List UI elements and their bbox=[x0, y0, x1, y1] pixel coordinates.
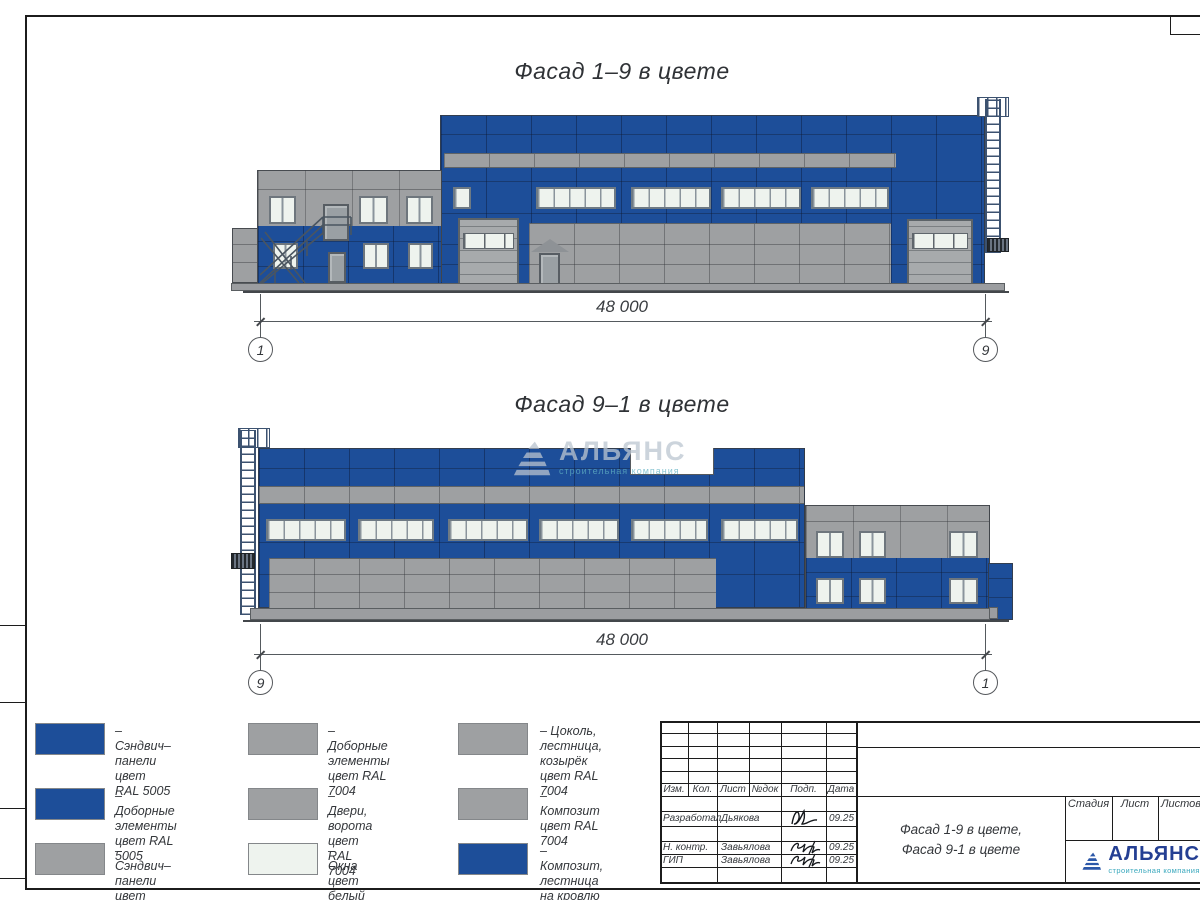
company-logo: АЛЬЯНС строительная компания bbox=[1082, 842, 1200, 882]
tb-name: Завьялова bbox=[719, 854, 779, 867]
facade2-annex bbox=[988, 563, 1013, 620]
wall-unit bbox=[987, 238, 1009, 252]
panel-joint bbox=[989, 597, 1012, 598]
panel-joint bbox=[269, 574, 716, 575]
margin-box-line bbox=[0, 878, 26, 879]
window bbox=[359, 196, 388, 224]
margin-box-line bbox=[0, 808, 26, 809]
logo-pyramid-icon bbox=[1082, 842, 1102, 880]
grid-line bbox=[660, 746, 857, 747]
facade2-gray-band bbox=[259, 486, 804, 504]
gate-window-row bbox=[912, 233, 968, 249]
wall-unit bbox=[231, 553, 255, 569]
window bbox=[363, 243, 389, 269]
roof-ladder bbox=[240, 430, 256, 615]
watermark: АЛЬЯНС строительная компания bbox=[513, 436, 723, 484]
ribbon-window bbox=[631, 519, 708, 541]
panel-joint bbox=[806, 521, 989, 522]
legend-label: – Композитцвет RAL 7004 bbox=[540, 789, 600, 849]
dimension-line bbox=[254, 321, 992, 322]
panel-joint bbox=[806, 572, 989, 573]
tb-stage: Стадия bbox=[1065, 796, 1112, 811]
window bbox=[406, 196, 433, 224]
legend-swatch bbox=[35, 723, 105, 755]
ribbon-window bbox=[453, 187, 471, 209]
panel-joint bbox=[441, 181, 984, 182]
legend-swatch bbox=[458, 843, 528, 875]
legend-label: – Сэндвич–панелицвет RAL 5005 bbox=[115, 724, 171, 799]
watermark-name: АЛЬЯНС bbox=[559, 436, 687, 466]
watermark-pyramid-icon bbox=[513, 436, 553, 480]
ribbon-window bbox=[721, 187, 801, 209]
grid-line bbox=[660, 758, 857, 759]
window bbox=[859, 578, 886, 604]
facade2-office-block bbox=[805, 505, 990, 610]
facade-9-1-title: Фасад 9–1 в цвете bbox=[392, 391, 852, 418]
canopy-icon bbox=[531, 239, 569, 252]
legend-swatch bbox=[248, 843, 318, 875]
axis-marker: 9 bbox=[248, 670, 273, 695]
facade1-annex bbox=[232, 228, 258, 283]
grid-line bbox=[1065, 840, 1200, 841]
legend-label: – Окнацвет белый bbox=[328, 844, 365, 900]
panel-joint bbox=[441, 134, 984, 135]
external-staircase bbox=[255, 200, 357, 286]
ribbon-window bbox=[266, 519, 346, 541]
ribbon-window bbox=[448, 519, 528, 541]
ribbon-window bbox=[721, 519, 798, 541]
panel-joint bbox=[233, 244, 257, 245]
grid-line bbox=[660, 771, 857, 772]
panel-joint bbox=[529, 244, 891, 245]
signature bbox=[788, 806, 822, 828]
panel-joint bbox=[269, 592, 716, 593]
facade2-lower-gray-band bbox=[269, 558, 716, 608]
sectional-gate bbox=[458, 218, 519, 289]
tb-header-ndok: №док bbox=[749, 783, 781, 796]
ground-line bbox=[243, 620, 1009, 622]
ribbon-window bbox=[539, 519, 619, 541]
panel-joint bbox=[258, 189, 441, 190]
grid-line bbox=[660, 826, 857, 827]
roof-ladder bbox=[985, 99, 1001, 253]
tb-header-izm: Изм. bbox=[660, 783, 688, 796]
tb-sheet-title: Фасад 1-9 в цвете, Фасад 9-1 в цвете bbox=[858, 820, 1064, 860]
panel-joint bbox=[233, 262, 257, 263]
legend-label: – Композит,лестница на кровлюцвет RAL 50… bbox=[540, 844, 603, 900]
annex-plinth bbox=[989, 607, 998, 619]
window bbox=[949, 578, 978, 604]
tb-date: 09.25 bbox=[827, 811, 856, 826]
legend-label: – Сэндвич–панелицвет RAL 7004 bbox=[115, 844, 171, 900]
legend-label: – Цоколь, лестница,козырёкцвет RAL 7004 bbox=[540, 724, 602, 799]
extension-line bbox=[260, 624, 261, 672]
garage-door bbox=[907, 219, 973, 289]
dimension-line bbox=[254, 654, 992, 655]
panel-joint bbox=[441, 213, 984, 214]
panel-joint bbox=[989, 578, 1012, 579]
legend-swatch bbox=[458, 788, 528, 820]
tb-date: 09.25 bbox=[827, 841, 856, 854]
dimension-value: 48 000 bbox=[537, 297, 707, 317]
plinth bbox=[231, 283, 1005, 291]
gate-window-row bbox=[463, 233, 514, 249]
axis-marker: 9 bbox=[973, 337, 998, 362]
frame-top-border bbox=[25, 15, 1200, 17]
panel-joint bbox=[529, 264, 891, 265]
tb-header-kol: Кол. bbox=[688, 783, 717, 796]
facade1-lower-gray-band bbox=[529, 223, 891, 284]
facade1-gray-band bbox=[444, 153, 896, 168]
legend-swatch bbox=[248, 723, 318, 755]
tb-header-podp: Подп. bbox=[781, 783, 826, 796]
facade1-tall-section bbox=[440, 115, 985, 290]
tb-role: Разработал bbox=[661, 811, 717, 826]
drawing-sheet: { "colors": { "panel_blue": "#1d4e99", "… bbox=[0, 0, 1200, 900]
grid-line bbox=[856, 747, 1200, 748]
dimension-value: 48 000 bbox=[537, 630, 707, 650]
ribbon-window bbox=[536, 187, 616, 209]
facade-1-9-title: Фасад 1–9 в цвете bbox=[392, 58, 852, 85]
tb-sheets: Листов bbox=[1158, 796, 1200, 811]
window bbox=[408, 243, 433, 269]
ribbon-window bbox=[631, 187, 711, 209]
legend-swatch bbox=[248, 788, 318, 820]
facade-1-9-drawing bbox=[225, 85, 1015, 310]
window bbox=[816, 578, 844, 604]
logo-subtitle: строительная компания bbox=[1108, 866, 1200, 875]
margin-box-line bbox=[0, 702, 26, 703]
grid-line bbox=[660, 733, 857, 734]
tb-date: 09.25 bbox=[827, 854, 856, 867]
window bbox=[949, 531, 978, 558]
watermark-subtitle: строительная компания bbox=[559, 466, 687, 476]
legend-swatch bbox=[35, 843, 105, 875]
grid-line bbox=[660, 721, 1200, 723]
facade-9-1-drawing: АЛЬЯНС строительная компания bbox=[225, 420, 1015, 650]
ground-line bbox=[243, 291, 1009, 293]
legend-label: – Доборные элементыцвет RAL 7004 bbox=[328, 724, 390, 799]
legend-swatch bbox=[35, 788, 105, 820]
axis-marker: 1 bbox=[973, 670, 998, 695]
grid-line bbox=[660, 867, 857, 868]
legend-swatch bbox=[458, 723, 528, 755]
grid-line bbox=[660, 882, 1200, 884]
tb-sheet: Лист bbox=[1112, 796, 1158, 811]
window bbox=[859, 531, 886, 558]
margin-box-line bbox=[0, 625, 26, 626]
frame-bottom-border bbox=[25, 888, 1200, 890]
panel-joint bbox=[259, 542, 804, 543]
tb-header-list: Лист bbox=[717, 783, 749, 796]
signature bbox=[788, 853, 822, 868]
frame-corner-box bbox=[1170, 16, 1200, 35]
ribbon-window bbox=[358, 519, 434, 541]
tb-name: Завьялова bbox=[719, 841, 779, 854]
tb-name: Дьякова bbox=[719, 811, 779, 826]
ribbon-window bbox=[811, 187, 889, 209]
tb-header-data: Дата bbox=[826, 783, 856, 796]
tb-role: ГИП bbox=[661, 854, 717, 867]
axis-marker: 1 bbox=[248, 337, 273, 362]
frame-left-border bbox=[25, 15, 27, 890]
window bbox=[816, 531, 844, 558]
extension-line bbox=[985, 624, 986, 672]
tb-role: Н. контр. bbox=[661, 841, 717, 854]
logo-name: АЛЬЯНС bbox=[1108, 842, 1200, 866]
plinth bbox=[250, 608, 990, 620]
